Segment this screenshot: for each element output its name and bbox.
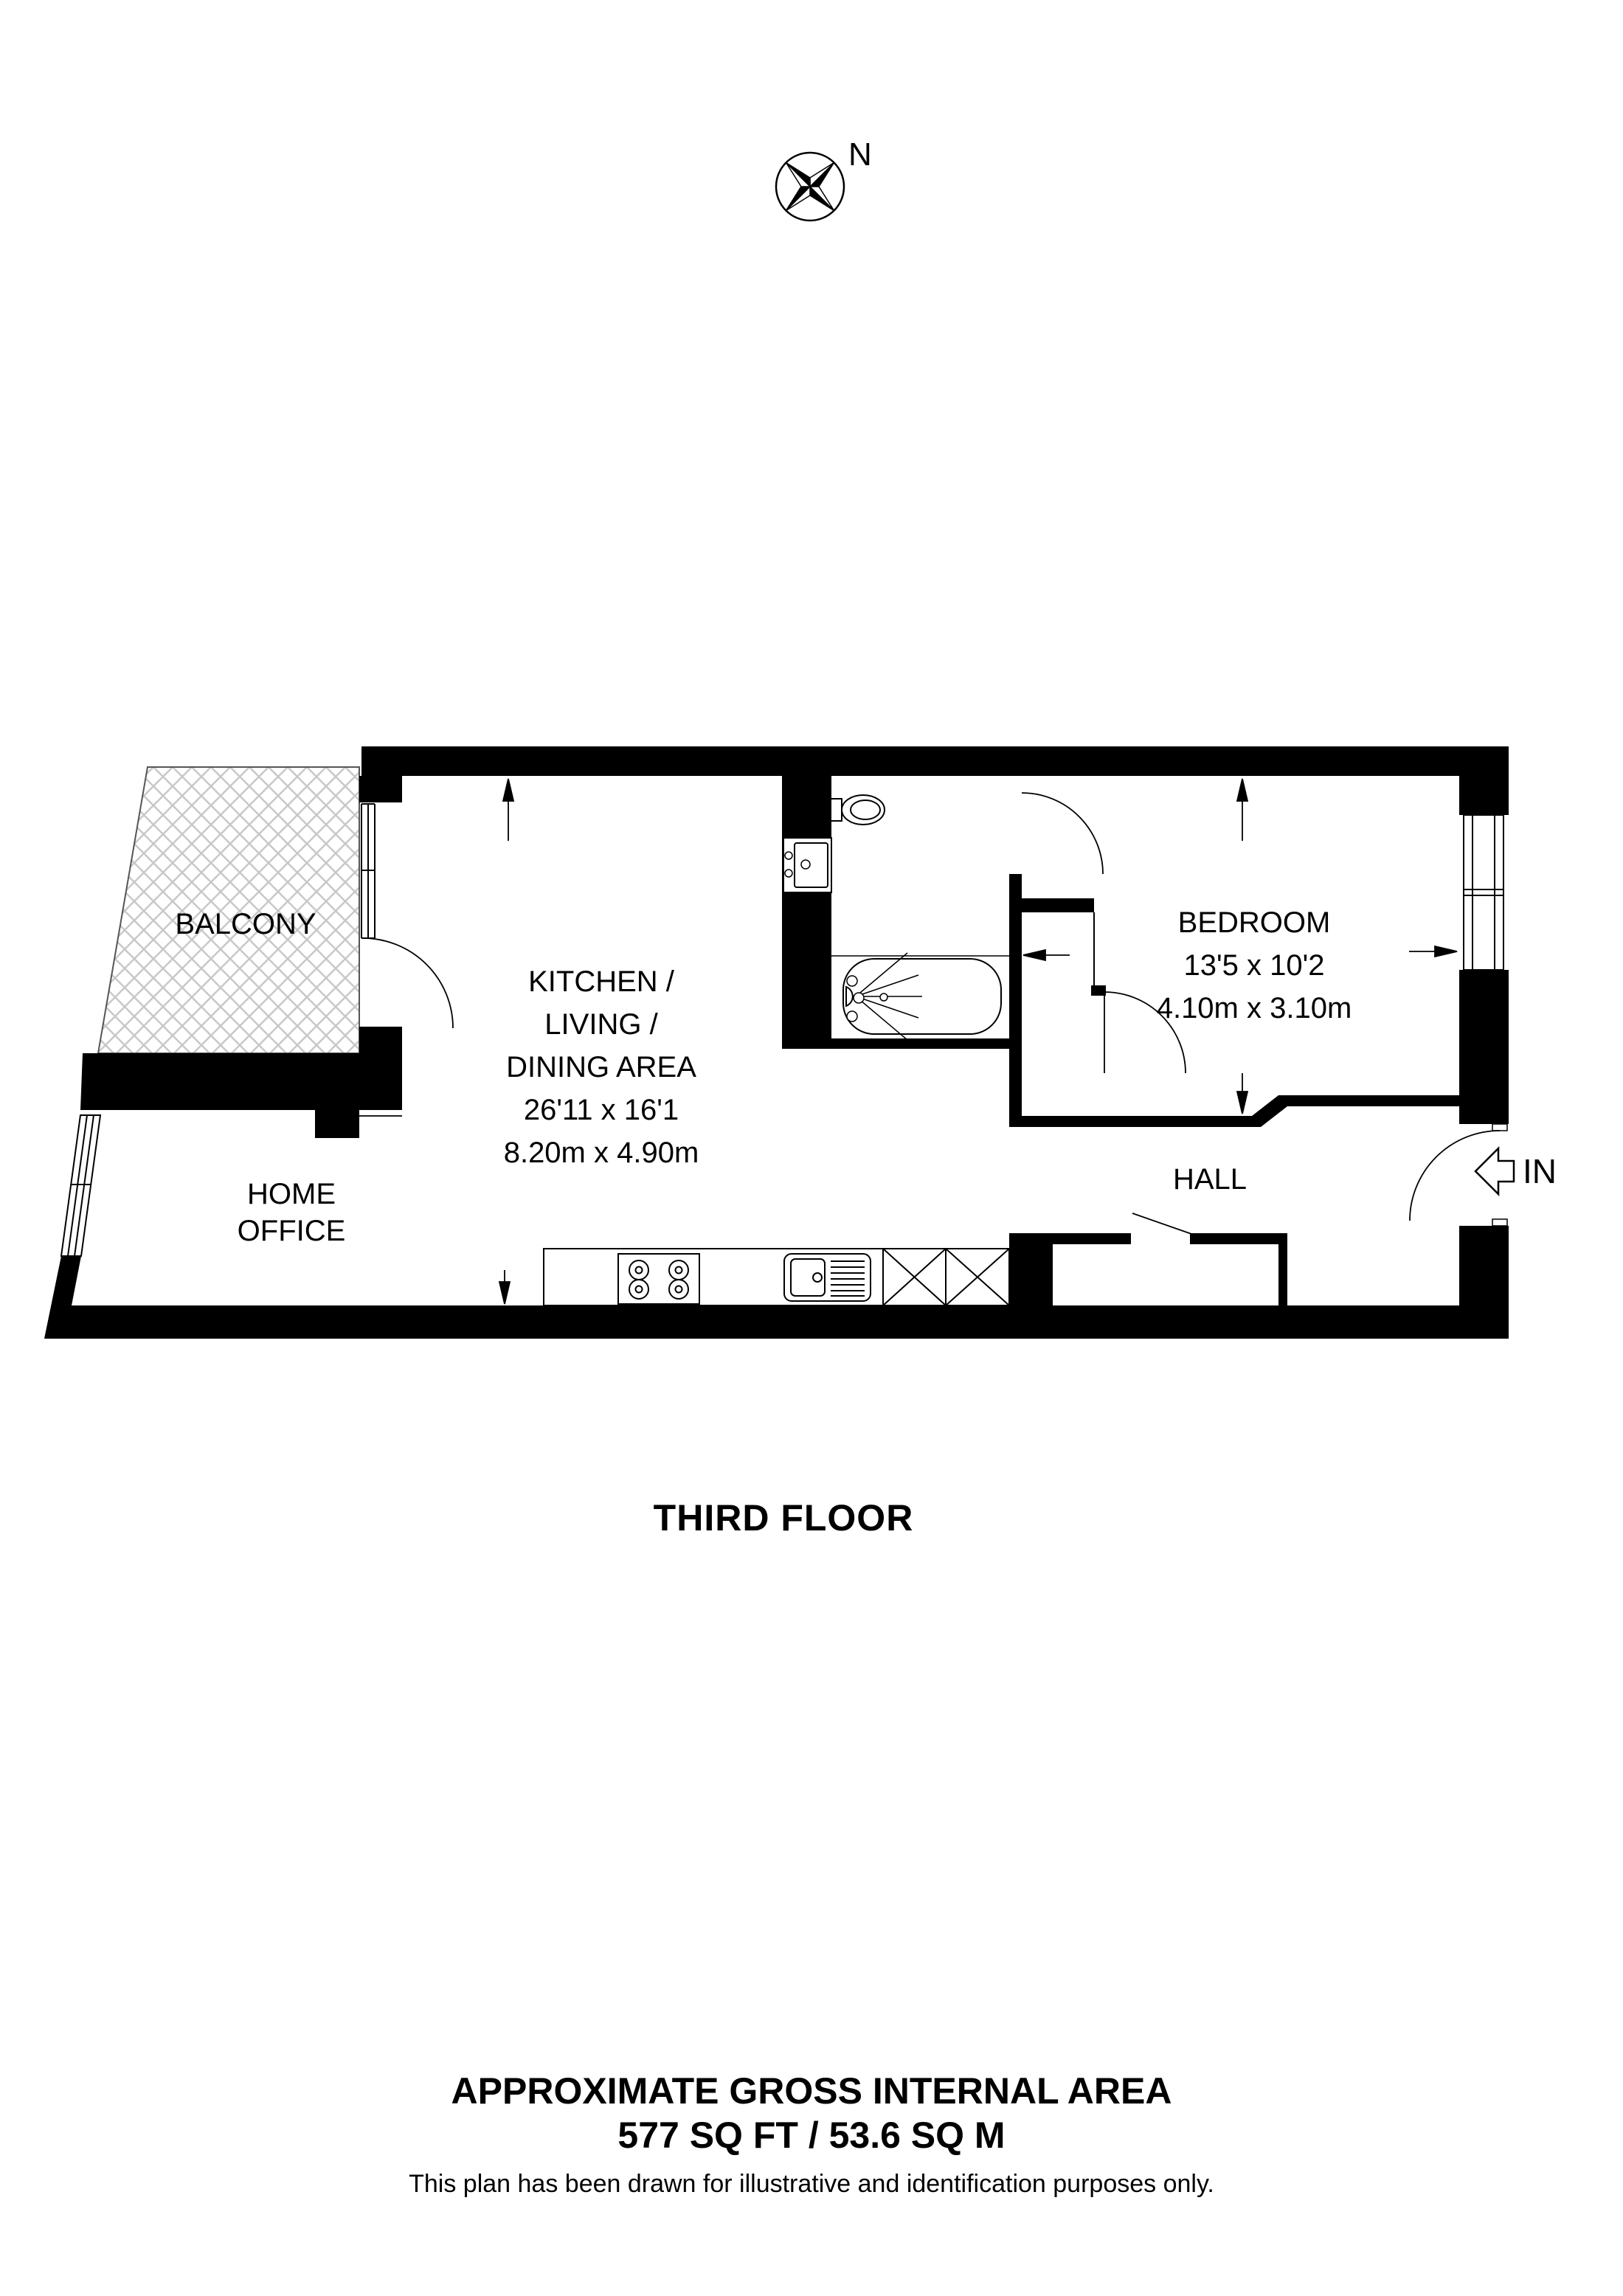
balcony-door-arc bbox=[363, 938, 453, 1028]
kitchen-counter bbox=[544, 1249, 1009, 1305]
dimension-arrow-down-icon bbox=[499, 1270, 510, 1304]
footer-area-title: APPROXIMATE GROSS INTERNAL AREA bbox=[451, 2070, 1172, 2112]
closet-door-leaf bbox=[1132, 1213, 1191, 1234]
wall-top bbox=[361, 746, 1509, 815]
compass-rose-icon: N bbox=[776, 136, 872, 221]
bedroom-label: BEDROOM bbox=[1178, 906, 1331, 939]
kitchen-label-line2: LIVING / bbox=[544, 1008, 658, 1041]
wall-closet-top-right bbox=[1190, 1233, 1287, 1244]
dimension-arrow-up-icon bbox=[1237, 779, 1247, 841]
bathroom-door-arc bbox=[1022, 793, 1103, 874]
kitchen-label-line1: KITCHEN / bbox=[528, 965, 675, 998]
dimension-arrow-left-icon bbox=[1023, 950, 1070, 960]
wall-balcony-door-bottom bbox=[359, 1027, 402, 1110]
home-office-label-line1: HOME bbox=[247, 1178, 336, 1210]
floor-title: THIRD FLOOR bbox=[654, 1497, 914, 1539]
wall-bathroom-west bbox=[782, 776, 831, 1049]
dimension-arrow-up-icon bbox=[503, 779, 513, 841]
kitchen-dims-metric: 8.20m x 4.90m bbox=[504, 1137, 699, 1169]
bedroom-dims-metric: 4.10m x 3.10m bbox=[1157, 992, 1352, 1024]
wall-hall-stub bbox=[1022, 1116, 1077, 1127]
compass-north-label: N bbox=[848, 136, 872, 173]
toilet-icon bbox=[831, 795, 885, 825]
wall-bathroom-south bbox=[782, 1038, 1022, 1049]
wall-closet-east bbox=[1278, 1233, 1287, 1305]
kitchen-dims-imperial: 26'11 x 16'1 bbox=[524, 1094, 679, 1126]
dimension-arrow-down-icon bbox=[1237, 1073, 1247, 1114]
footer-disclaimer: This plan has been drawn for illustrativ… bbox=[409, 2170, 1214, 2198]
wall-balcony-door-top bbox=[359, 776, 402, 802]
dimension-arrow-right-icon bbox=[1409, 946, 1457, 957]
home-office-label-line2: OFFICE bbox=[238, 1215, 346, 1247]
wall-closet-top-left bbox=[1053, 1233, 1131, 1244]
kitchen-label-line3: DINING AREA bbox=[506, 1051, 696, 1083]
floorplan-drawing: N bbox=[0, 0, 1623, 2296]
bathroom-sink-icon bbox=[783, 838, 831, 892]
balcony-door bbox=[361, 804, 453, 1028]
wall-closet-west bbox=[1009, 1233, 1053, 1305]
balcony-label: BALCONY bbox=[175, 908, 316, 940]
bathtub-icon bbox=[843, 953, 1001, 1040]
bedroom-window bbox=[1464, 815, 1503, 970]
floorplan-page: N bbox=[0, 0, 1623, 2296]
entrance-in-label: IN bbox=[1523, 1152, 1557, 1190]
footer-area-value: 577 SQ FT / 53.6 SQ M bbox=[617, 2115, 1005, 2156]
wall-bedroom-south bbox=[1077, 1095, 1459, 1127]
wall-bathroom-east bbox=[1009, 874, 1022, 1127]
bedroom-dims-imperial: 13'5 x 10'2 bbox=[1184, 949, 1325, 982]
entrance-in-arrow-icon: IN bbox=[1475, 1148, 1557, 1194]
hall-label: HALL bbox=[1173, 1163, 1247, 1196]
wall-wardrobe-stub bbox=[1022, 898, 1094, 912]
wall-right-mid bbox=[1459, 970, 1509, 1124]
home-office-window bbox=[61, 1115, 100, 1256]
wall-balcony-bottom bbox=[80, 1053, 359, 1138]
